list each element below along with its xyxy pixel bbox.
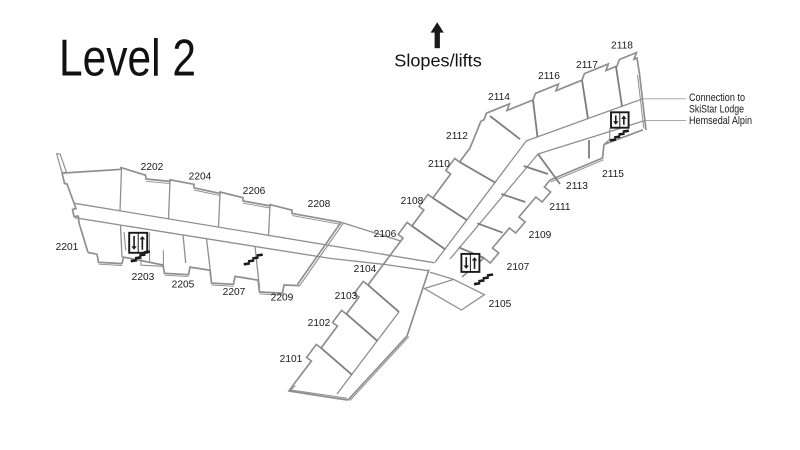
svg-text:2108: 2108 — [401, 196, 424, 207]
svg-text:2103: 2103 — [335, 291, 358, 302]
svg-text:2207: 2207 — [223, 287, 246, 298]
svg-text:Level 2: Level 2 — [59, 30, 196, 88]
svg-text:2107: 2107 — [507, 262, 530, 273]
svg-text:2209: 2209 — [271, 293, 294, 304]
svg-text:2206: 2206 — [243, 186, 266, 197]
svg-text:2110: 2110 — [428, 159, 450, 170]
svg-text:2202: 2202 — [141, 162, 164, 173]
svg-text:2113: 2113 — [566, 181, 588, 192]
svg-text:Hemsedal Alpin: Hemsedal Alpin — [689, 115, 752, 127]
svg-text:2109: 2109 — [529, 230, 552, 241]
svg-text:2208: 2208 — [308, 199, 331, 210]
svg-text:2205: 2205 — [172, 280, 195, 291]
svg-text:2102: 2102 — [308, 318, 331, 329]
svg-text:2203: 2203 — [132, 272, 155, 283]
svg-text:2116: 2116 — [538, 71, 560, 82]
svg-text:2115: 2115 — [602, 169, 624, 180]
svg-text:2111: 2111 — [549, 202, 570, 213]
svg-text:2105: 2105 — [489, 299, 512, 310]
svg-text:2114: 2114 — [488, 92, 510, 103]
svg-text:2112: 2112 — [446, 131, 468, 142]
svg-text:SkiStar Lodge: SkiStar Lodge — [689, 104, 744, 116]
svg-text:2204: 2204 — [189, 172, 212, 183]
svg-text:2104: 2104 — [354, 264, 377, 275]
svg-text:2117: 2117 — [576, 60, 598, 71]
svg-text:Connection to: Connection to — [689, 92, 745, 104]
svg-text:Slopes/lifts: Slopes/lifts — [394, 51, 482, 71]
svg-text:2201: 2201 — [56, 242, 79, 253]
svg-text:2118: 2118 — [611, 41, 633, 52]
svg-text:2101: 2101 — [280, 354, 303, 365]
svg-text:2106: 2106 — [374, 229, 397, 240]
